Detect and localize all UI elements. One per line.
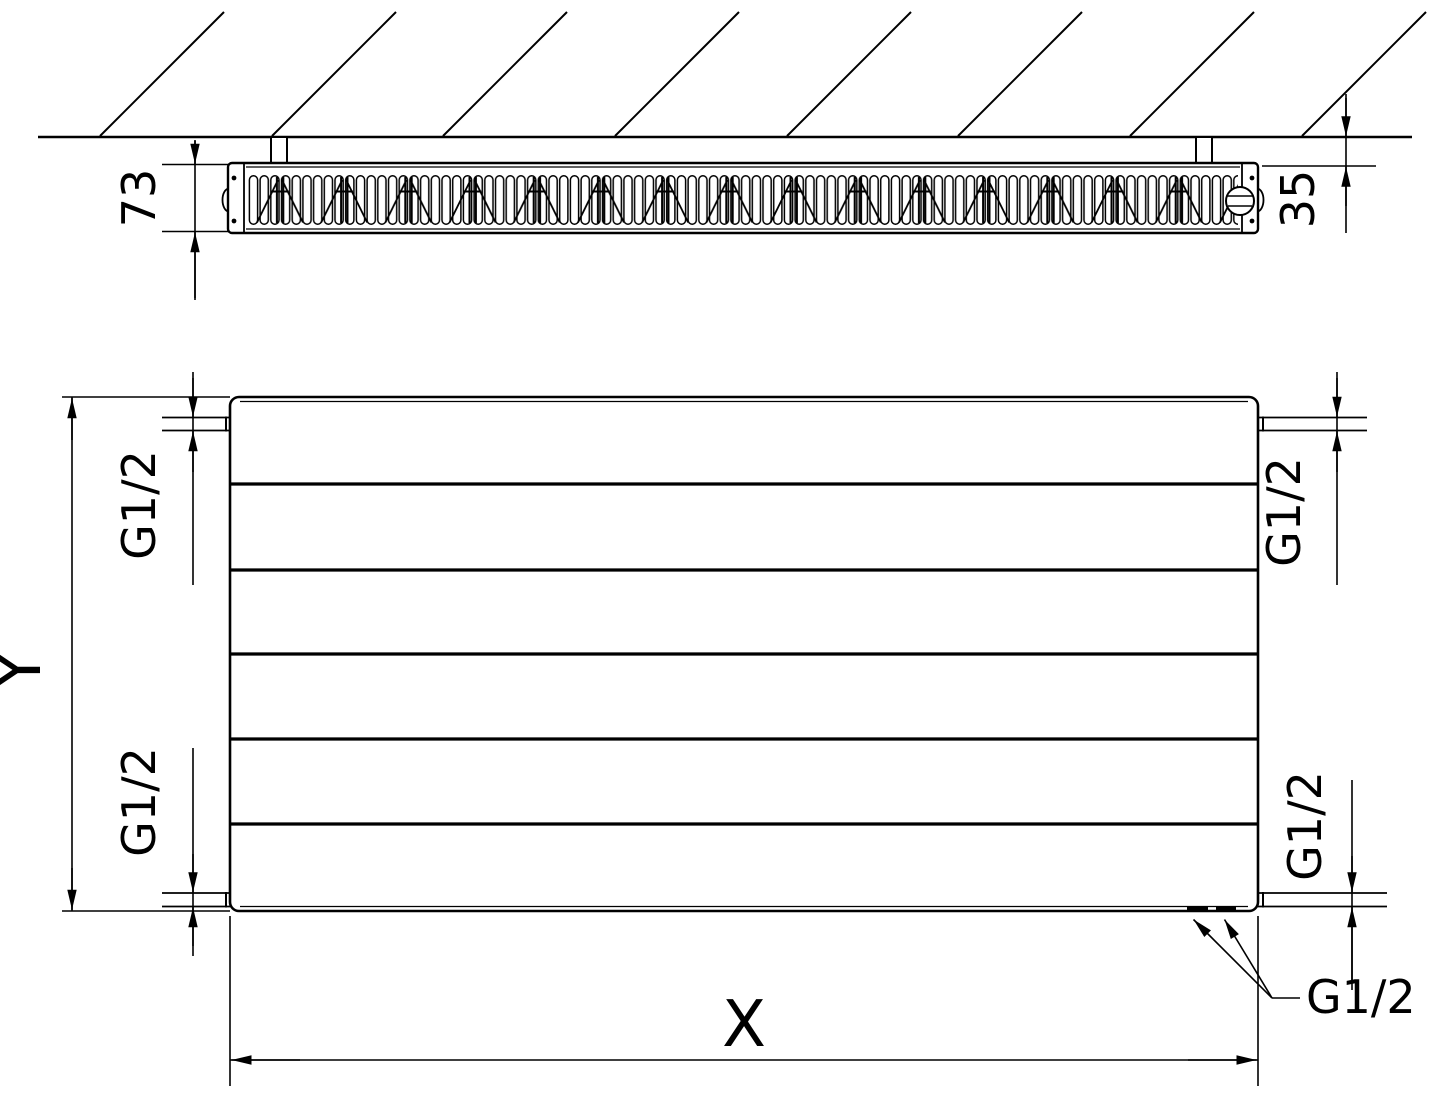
end-cap-screw-top-left: [232, 176, 237, 181]
thread-label-top-right: G1/2: [1257, 457, 1311, 567]
mounting-bracket-right: [1196, 137, 1212, 165]
mounting-bracket-left: [271, 137, 287, 165]
connection-stub-bottom-left: [162, 892, 230, 908]
thread-leader: [1194, 920, 1301, 999]
front-view: Y X G1/2 G1/2 G1/2: [0, 372, 1416, 1086]
thread-label-top-left: G1/2: [112, 450, 166, 560]
connection-stub-bottom-right: [1258, 892, 1387, 908]
height-label: Y: [0, 650, 56, 691]
wall-hatching: [100, 12, 1426, 136]
end-cap-screw-bottom-left: [232, 219, 237, 224]
convector-fins: [248, 175, 1238, 225]
radiator-dimension-drawing: 73 35: [0, 0, 1431, 1093]
thread-label-bottom-right: G1/2: [1278, 771, 1332, 881]
depth-label: 73: [112, 169, 166, 228]
dimension-depth: [162, 140, 229, 300]
thread-label-bottom-left: G1/2: [112, 747, 166, 857]
connection-stub-top-left: [162, 417, 230, 432]
end-cap-screw-bottom-right: [1250, 219, 1255, 224]
connection-stub-top-right: [1258, 417, 1367, 432]
width-label: X: [722, 988, 766, 1062]
wall-distance-label: 35: [1271, 170, 1325, 229]
radiator-technical-drawing-page: 73 35: [0, 0, 1431, 1093]
thread-leader-label: G1/2: [1306, 970, 1416, 1024]
end-cap-screw-top-right: [1250, 176, 1255, 181]
valve-insert: [1226, 187, 1254, 215]
top-view: 73 35: [38, 12, 1426, 300]
